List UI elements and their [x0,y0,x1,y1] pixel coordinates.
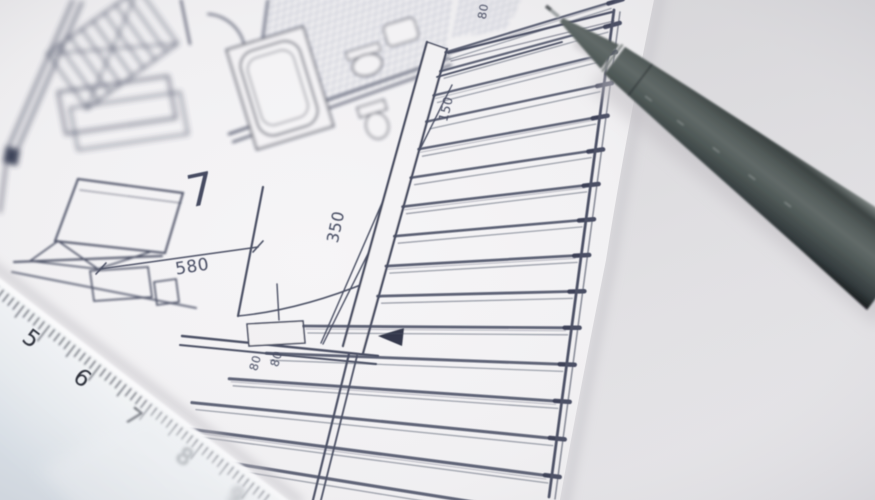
vignette-overlay [0,0,875,500]
photo-canvas: 7 580 350 80 80 [0,0,875,500]
photo-blueprint-scene: 7 580 350 80 80 [0,0,875,500]
